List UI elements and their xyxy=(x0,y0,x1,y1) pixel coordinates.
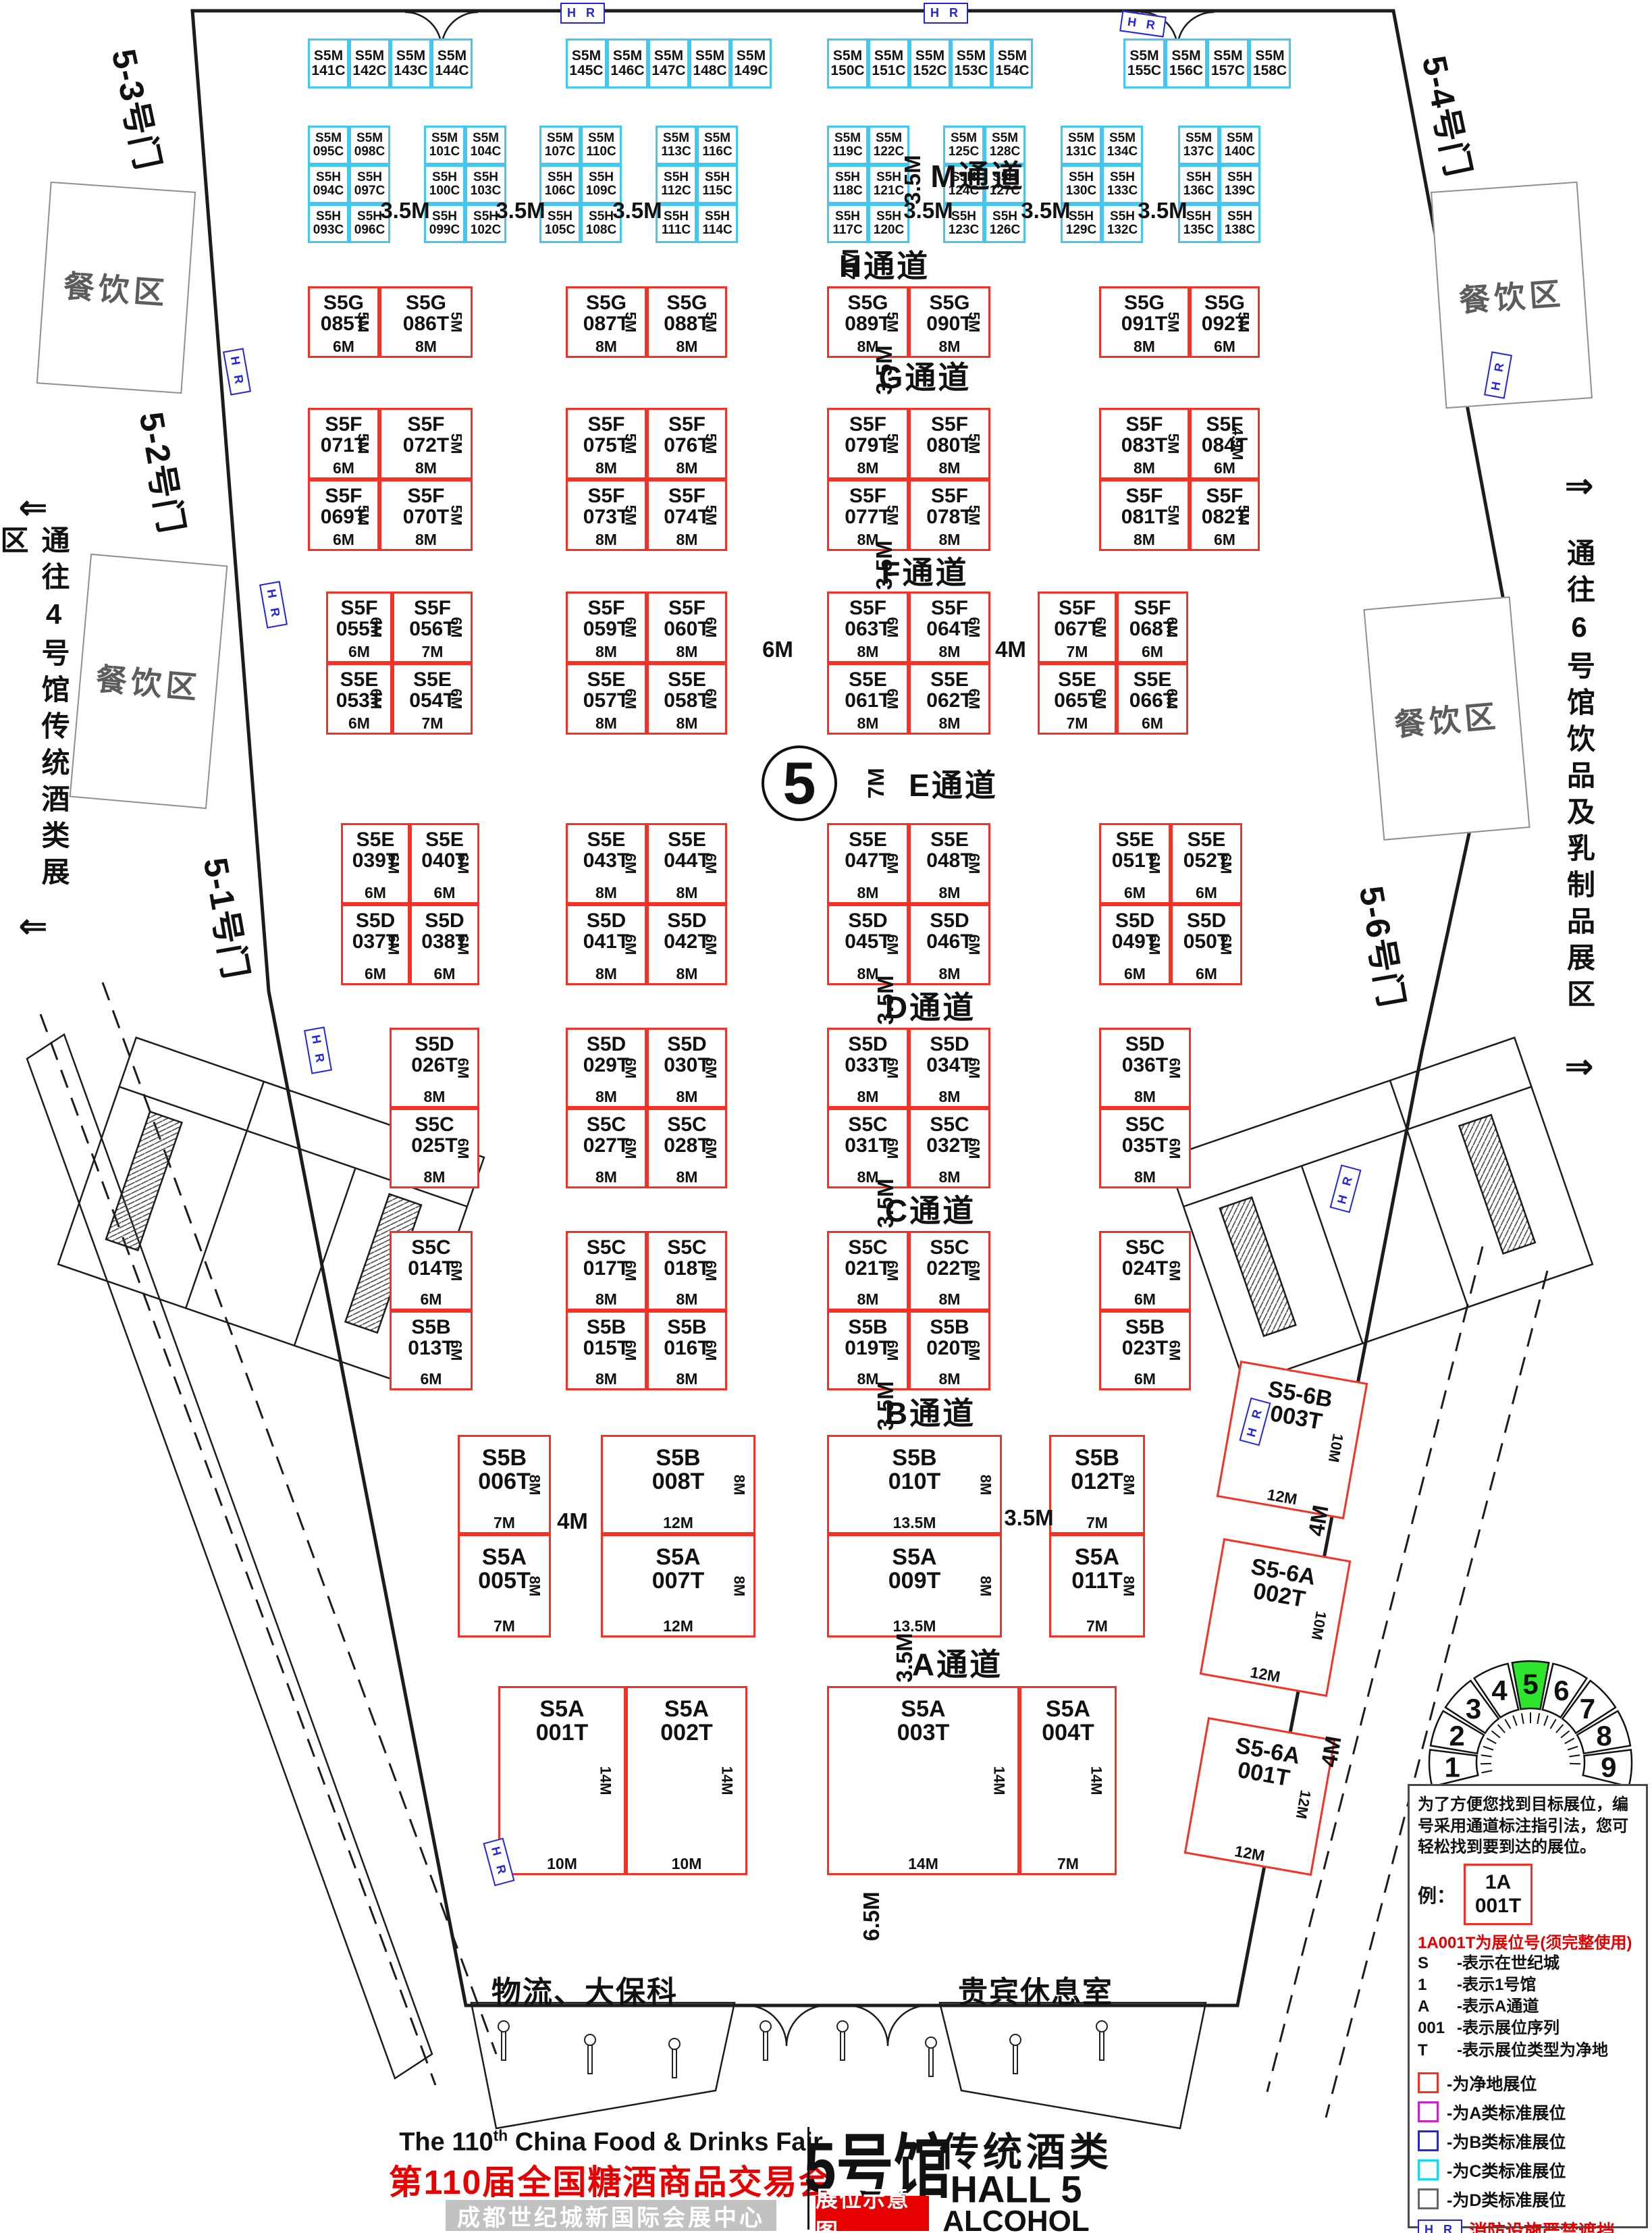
legend-example-booth: 1A 001T xyxy=(1464,1864,1533,1925)
booth-side-dim: 5M xyxy=(449,312,464,333)
booth-bottom-dim: 8M xyxy=(568,885,645,901)
booth-S5G-090T[interactable]: S5G090T8M5M xyxy=(909,286,990,358)
booth-side-dim: 8M xyxy=(1121,1474,1136,1495)
booth-side-dim: 4.9M xyxy=(1230,427,1245,461)
booth-S5M-154C[interactable]: S5M154C xyxy=(992,38,1033,88)
booth-side-dim: 5M xyxy=(703,505,718,526)
booth-S5M-146C[interactable]: S5M146C xyxy=(607,38,648,88)
booth-side-dim: 8M xyxy=(1121,1575,1136,1596)
booth-S5H-117C[interactable]: S5H117C xyxy=(827,204,868,243)
booth-bottom-dim: 8M xyxy=(568,1292,645,1307)
dim-label: 3.5M xyxy=(1004,1505,1053,1531)
booth-S5G-086T[interactable]: S5G086T8M5M xyxy=(379,286,473,358)
booth-side-dim: 6M xyxy=(1219,935,1233,955)
fire-hydrant-icon: H R xyxy=(1418,2219,1462,2233)
booth-side-dim: 6M xyxy=(369,617,383,638)
booth-id: S5-6A001T xyxy=(1200,1729,1331,1797)
booth-S5F-069T[interactable]: S5F069T6M5M xyxy=(308,479,379,551)
booth-bottom-dim: 8M xyxy=(568,339,645,354)
booth-id: S5M156C xyxy=(1167,49,1205,78)
booth-id: S5H103C xyxy=(467,171,504,198)
booth-side-dim: 5M xyxy=(885,312,900,333)
booth-S5C-018T[interactable]: S5C018T8M6M xyxy=(647,1231,727,1311)
booth-S5M-142C[interactable]: S5M142C xyxy=(349,38,390,88)
booth-side-dim: 5M xyxy=(703,312,718,333)
booth-S5M-098C[interactable]: S5M098C xyxy=(349,126,390,165)
booth-S5A-001T[interactable]: S5A001T10M14M xyxy=(498,1686,626,1875)
booth-bottom-dim: 8M xyxy=(911,1292,988,1307)
booth-S5B-016T[interactable]: S5B016T8M6M xyxy=(647,1311,727,1390)
booth-side-dim: 5M xyxy=(967,505,982,526)
booth-S5F-080T[interactable]: S5F080T8M5M xyxy=(909,408,990,479)
booth-id: S5M154C xyxy=(994,49,1031,78)
booth-S5B-015T[interactable]: S5B015T8M6M xyxy=(566,1311,647,1390)
booth-id: S5H132C xyxy=(1104,210,1141,237)
booth-S5E-054T[interactable]: S5E054T7M6M xyxy=(392,663,473,735)
booth-side-dim: 6M xyxy=(449,617,464,638)
booth-S5E-044T[interactable]: S5E044T8M6M xyxy=(647,823,727,904)
booth-side-dim: 6M xyxy=(1147,853,1162,874)
booth-side-dim: 6M xyxy=(1147,935,1162,955)
booth-S5M-144C[interactable]: S5M144C xyxy=(431,38,473,88)
booth-id: S5M153C xyxy=(953,49,990,78)
booth-S5H-094C[interactable]: S5H094C xyxy=(308,165,349,204)
booth-S5B-010T[interactable]: S5B010T13.5M8M xyxy=(827,1435,1002,1534)
booth-side-dim: 5M xyxy=(1166,505,1181,526)
booth-bottom-dim: 6M xyxy=(310,532,377,548)
booth-S5B-012T[interactable]: S5B012T7M8M xyxy=(1049,1435,1145,1534)
locator-hall-number: 9 xyxy=(1601,1751,1616,1783)
booth-S5D-036T[interactable]: S5D036T8M6M xyxy=(1099,1028,1191,1108)
booth-id: S5H109C xyxy=(583,171,620,198)
booth-S5B-013T[interactable]: S5B013T6M6M xyxy=(390,1311,473,1390)
dim-label: 4M xyxy=(995,637,1026,662)
booth-bottom-dim: 8M xyxy=(381,461,471,476)
booth-S5A-003T[interactable]: S5A003T14M14M xyxy=(827,1686,1019,1875)
booth-bottom-dim: 12M xyxy=(603,1619,753,1634)
booth-S5E-065T[interactable]: S5E065T7M6M xyxy=(1038,663,1117,735)
booth-S5G-088T[interactable]: S5G088T8M5M xyxy=(647,286,727,358)
hall-walls xyxy=(0,0,1652,2233)
booth-S5C-031T[interactable]: S5C031T8M6M xyxy=(827,1108,909,1188)
booth-side-dim: 5M xyxy=(623,505,638,526)
column-icon xyxy=(836,2020,849,2032)
booth-S5D-030T[interactable]: S5D030T8M6M xyxy=(647,1028,727,1108)
booth-bottom-dim: 8M xyxy=(392,1089,477,1105)
booth-S5M-145C[interactable]: S5M145C xyxy=(566,38,607,88)
booth-S5E-048T[interactable]: S5E048T8M6M xyxy=(909,823,990,904)
booth-side-dim: 6M xyxy=(456,1138,471,1159)
booth-S5F-072T[interactable]: S5F072T8M5M xyxy=(379,408,473,479)
legend-swatch-row: -为B类标准展位 xyxy=(1418,2129,1638,2153)
booth-side-dim: 8M xyxy=(978,1575,993,1596)
booth-S5M-156C[interactable]: S5M156C xyxy=(1165,38,1207,88)
booth-side-dim: 8M xyxy=(732,1575,747,1596)
booth-id: S5H120C xyxy=(870,210,907,237)
booth-S5E-053T[interactable]: S5E053T6M6M xyxy=(326,663,392,735)
booth-side-dim: 6M xyxy=(386,853,401,874)
booth-S5F-075T[interactable]: S5F075T8M5M xyxy=(566,408,647,479)
booth-S5C-028T[interactable]: S5C028T8M6M xyxy=(647,1108,727,1188)
hall-type-en: ALCOHOL xyxy=(942,2205,1090,2233)
corridor-right-text: 通往6号馆饮品及乳制品展区 xyxy=(1559,538,1600,1016)
booth-S5M-143C[interactable]: S5M143C xyxy=(390,38,431,88)
legend-example-line2: 001T xyxy=(1466,1895,1530,1918)
booth-S5M-152C[interactable]: S5M152C xyxy=(909,38,951,88)
booth-S5A-005T[interactable]: S5A005T7M8M xyxy=(458,1534,551,1637)
legend-intro: 为了方便您找到目标展位，编号采用通道标注指引法，您可轻松找到要到达的展位。 xyxy=(1418,1794,1638,1858)
booth-S5E-039T[interactable]: S5E039T6M6M xyxy=(341,823,410,904)
booth-bottom-dim: 7M xyxy=(394,716,471,731)
booth-bottom-dim: 6M xyxy=(310,339,377,354)
corridor-to-hall6: ⇒ 通往6号馆饮品及乳制品展区 ⇒ xyxy=(1555,469,1603,1084)
booth-side-dim: 6M xyxy=(623,1057,638,1078)
booth-S5E-058T[interactable]: S5E058T8M6M xyxy=(647,663,727,735)
corridor-to-hall4: ⇐ 通往4号馆传统酒类展区 ⇐ xyxy=(9,490,57,944)
booth-S5F-068T[interactable]: S5F068T6M6M xyxy=(1117,592,1188,663)
booth-S5H-139C[interactable]: S5H139C xyxy=(1219,165,1260,204)
booth-S5F-070T[interactable]: S5F070T8M5M xyxy=(379,479,473,551)
booth-S5E-066T[interactable]: S5E066T6M6M xyxy=(1117,663,1188,735)
logistics-room xyxy=(471,2003,735,2128)
booth-S5F-082T[interactable]: S5F082T6M5M xyxy=(1190,479,1260,551)
booth-S5B-008T[interactable]: S5B008T12M8M xyxy=(601,1435,755,1534)
booth-S5A-011T[interactable]: S5A011T7M8M xyxy=(1049,1534,1145,1637)
booth-side-dim: 5M xyxy=(449,434,464,454)
booth-side-dim: 6M xyxy=(456,1057,471,1078)
booth-bottom-dim: 6M xyxy=(1101,1292,1189,1307)
booth-side-dim: 5M xyxy=(356,434,371,454)
booth-S5D-038T[interactable]: S5D038T6M6M xyxy=(410,904,479,985)
booth-S5M-157C[interactable]: S5M157C xyxy=(1207,38,1249,88)
booth-bottom-dim: 7M xyxy=(460,1515,549,1531)
booth-bottom-dim: 12M xyxy=(603,1515,753,1531)
aisle-width-H通道: 4M xyxy=(838,248,863,280)
booth-S5C-032T[interactable]: S5C032T8M6M xyxy=(909,1108,990,1188)
booth-side-dim: 6M xyxy=(967,853,982,874)
booth-side-dim: 6M xyxy=(885,1057,900,1078)
booth-S5M-153C[interactable]: S5M153C xyxy=(951,38,992,88)
booth-bottom-dim: 8M xyxy=(1101,339,1188,354)
booth-side-dim: 6M xyxy=(456,853,471,874)
booth-S5H-118C[interactable]: S5H118C xyxy=(827,165,868,204)
booth-bottom-dim: 8M xyxy=(649,1089,725,1105)
legend-fire-row: H R 消防设施严禁遮挡 xyxy=(1418,2217,1638,2233)
booth-bottom-dim: 8M xyxy=(829,716,907,731)
booth-S5M-101C[interactable]: S5M101C xyxy=(424,126,465,165)
booth-S5M-131C[interactable]: S5M131C xyxy=(1061,126,1102,165)
booth-S5F-067T[interactable]: S5F067T7M6M xyxy=(1038,592,1117,663)
booth-bottom-dim: 10M xyxy=(500,1856,624,1872)
booth-S5F-083T[interactable]: S5F083T8M5M xyxy=(1099,408,1190,479)
booth-S5A-004T[interactable]: S5A004T7M14M xyxy=(1019,1686,1117,1875)
booth-S5B-019T[interactable]: S5B019T8M6M xyxy=(827,1311,909,1390)
booth-S5M-149C[interactable]: S5M149C xyxy=(730,38,772,88)
booth-S5D-034T[interactable]: S5D034T8M6M xyxy=(909,1028,990,1108)
locator-hall-number: 1 xyxy=(1445,1751,1460,1783)
booth-S5F-056T[interactable]: S5F056T7M6M xyxy=(392,592,473,663)
dim-label: 3.5M xyxy=(612,198,662,224)
arrow-left-icon: ⇐ xyxy=(18,490,48,525)
dim-label: 3.5M xyxy=(496,198,545,224)
booth-bottom-dim: 6M xyxy=(1192,461,1258,476)
booth-S5C-021T[interactable]: S5C021T8M6M xyxy=(827,1231,909,1311)
booth-id: S5M116C xyxy=(699,132,736,159)
booth-S5M-104C[interactable]: S5M104C xyxy=(465,126,506,165)
booth-id: S5F084T xyxy=(1192,414,1258,456)
booth-S5D-029T[interactable]: S5D029T8M6M xyxy=(566,1028,647,1108)
booth-S5F-059T[interactable]: S5F059T8M6M xyxy=(566,592,647,663)
booth-S5C-027T[interactable]: S5C027T8M6M xyxy=(566,1108,647,1188)
fire-hydrant-icon: H R xyxy=(924,3,968,24)
booth-bottom-dim: 6M xyxy=(1119,644,1186,660)
booth-S5M-113C[interactable]: S5M113C xyxy=(656,126,697,165)
dim-label: 3.5M xyxy=(1021,198,1070,224)
legend-example-line1: 1A xyxy=(1466,1871,1530,1895)
booth-S5M-140C[interactable]: S5M140C xyxy=(1219,126,1260,165)
booth-bottom-dim: 8M xyxy=(911,339,988,354)
booth-bottom-dim: 8M xyxy=(1101,1089,1189,1105)
booth-S5B-020T[interactable]: S5B020T8M6M xyxy=(909,1311,990,1390)
booth-S5H-099C[interactable]: S5H099C xyxy=(424,204,465,243)
booth-S5B-006T[interactable]: S5B006T7M8M xyxy=(458,1435,551,1534)
booth-id: S5H115C xyxy=(699,171,736,198)
booth-side-dim: 10M xyxy=(1326,1432,1345,1463)
booth-bottom-dim: 8M xyxy=(649,966,725,982)
booth-side-dim: 14M xyxy=(598,1766,613,1795)
legend-fire-note: 消防设施严禁遮挡 xyxy=(1469,2217,1615,2233)
booth-S5M-147C[interactable]: S5M147C xyxy=(648,38,689,88)
booth-S5C-014T[interactable]: S5C014T6M6M xyxy=(390,1231,473,1311)
booth-bottom-dim: 6M xyxy=(1101,885,1169,901)
booth-side-dim: 6M xyxy=(967,935,982,955)
locator-hall-number: 6 xyxy=(1553,1675,1569,1706)
booth-S5H-106C[interactable]: S5H106C xyxy=(539,165,581,204)
booth-bottom-dim: 8M xyxy=(649,461,725,476)
booth-side-dim: 5M xyxy=(1166,434,1181,454)
booth-S5M-148C[interactable]: S5M148C xyxy=(689,38,730,88)
booth-S5H-105C[interactable]: S5H105C xyxy=(539,204,581,243)
booth-S5A-009T[interactable]: S5A009T13.5M8M xyxy=(827,1534,1002,1637)
booth-S5D-049T[interactable]: S5D049T6M6M xyxy=(1099,904,1171,985)
booth-S5F-071T[interactable]: S5F071T6M5M xyxy=(308,408,379,479)
booth-S5G-092T[interactable]: S5G092T6M5M xyxy=(1190,286,1260,358)
booth-S5C-035T[interactable]: S5C035T8M6M xyxy=(1099,1108,1191,1188)
booth-id: S5H106C xyxy=(541,171,579,198)
booth-S5F-063T[interactable]: S5F063T8M6M xyxy=(827,592,909,663)
booth-S5D-033T[interactable]: S5D033T8M6M xyxy=(827,1028,909,1108)
locator-hall-number: 2 xyxy=(1449,1720,1464,1752)
booth-side-dim: 6M xyxy=(1167,1138,1182,1159)
booth-bottom-dim: 8M xyxy=(568,1089,645,1105)
booth-side-dim: 5M xyxy=(623,312,638,333)
arrow-left-icon: ⇐ xyxy=(18,909,48,944)
booth-bottom-dim: 7M xyxy=(1021,1856,1115,1872)
booth-S5F-078T[interactable]: S5F078T8M5M xyxy=(909,479,990,551)
booth-S5M-107C[interactable]: S5M107C xyxy=(539,126,581,165)
booth-S5M-119C[interactable]: S5M119C xyxy=(827,126,868,165)
booth-S5G-091T[interactable]: S5G091T8M5M xyxy=(1099,286,1190,358)
booth-S5D-041T[interactable]: S5D041T8M6M xyxy=(566,904,647,985)
booth-side-dim: 6M xyxy=(703,1057,718,1078)
booth-S5E-051T[interactable]: S5E051T6M6M xyxy=(1099,823,1171,904)
booth-S5D-045T[interactable]: S5D045T8M6M xyxy=(827,904,909,985)
booth-bottom-dim: 8M xyxy=(649,644,725,660)
booth-S5H-132C[interactable]: S5H132C xyxy=(1102,204,1143,243)
floor-plan: ⇐ 通往4号馆传统酒类展区 ⇐ ⇒ 通往6号馆饮品及乳制品展区 ⇒ 5 1234… xyxy=(0,0,1652,2233)
booth-bottom-dim: 14M xyxy=(829,1856,1017,1872)
aisle-width-E通道: 7M xyxy=(863,768,889,799)
booth-side-dim: 6M xyxy=(885,1340,900,1361)
booth-id: S5M098C xyxy=(351,132,388,159)
booth-S5M-137C[interactable]: S5M137C xyxy=(1178,126,1219,165)
aisle-width-C通道: 3.5M xyxy=(873,1178,899,1228)
booth-side-dim: 6M xyxy=(885,617,900,638)
booth-side-dim: 5M xyxy=(1166,312,1181,333)
booth-side-dim: 6M xyxy=(456,935,471,955)
booth-id: S5H136C xyxy=(1180,171,1217,198)
booth-S5D-042T[interactable]: S5D042T8M6M xyxy=(647,904,727,985)
booth-S5E-040T[interactable]: S5E040T6M6M xyxy=(410,823,479,904)
booth-S5H-133C[interactable]: S5H133C xyxy=(1102,165,1143,204)
booth-side-dim: 8M xyxy=(527,1575,542,1596)
aisle-width-G通道: 3.5M xyxy=(872,345,897,394)
booth-S5M-151C[interactable]: S5M151C xyxy=(868,38,909,88)
dim-label: 4M xyxy=(1303,1503,1333,1538)
booth-id: S5M150C xyxy=(829,49,866,78)
booth-S5M-110C[interactable]: S5M110C xyxy=(581,126,622,165)
arrow-right-icon: ⇒ xyxy=(1564,469,1594,504)
booth-S5C-022T[interactable]: S5C022T8M6M xyxy=(909,1231,990,1311)
aisle-width-B通道: 3.5M xyxy=(873,1381,899,1430)
booth-S5M-155C[interactable]: S5M155C xyxy=(1123,38,1165,88)
booth-S5F-060T[interactable]: S5F060T8M6M xyxy=(647,592,727,663)
booth-bottom-dim: 8M xyxy=(1101,532,1188,548)
hall-locator-fan: 123456789 xyxy=(1414,1610,1647,1793)
booth-S5H-126C[interactable]: S5H126C xyxy=(984,204,1025,243)
booth-S5M-158C[interactable]: S5M158C xyxy=(1249,38,1291,88)
booth-S5M-095C[interactable]: S5M095C xyxy=(308,126,349,165)
booth-side-dim: 6M xyxy=(703,689,718,710)
booth-S5M-134C[interactable]: S5M134C xyxy=(1102,126,1143,165)
booth-side-dim: 5M xyxy=(885,505,900,526)
booth-S5H-100C[interactable]: S5H100C xyxy=(424,165,465,204)
dining-area: 餐饮区 xyxy=(70,554,228,809)
booth-S5E-047T[interactable]: S5E047T8M6M xyxy=(827,823,909,904)
booth-S5D-046T[interactable]: S5D046T8M6M xyxy=(909,904,990,985)
booth-S5E-057T[interactable]: S5E057T8M6M xyxy=(566,663,647,735)
venue-bar: 成都世纪城新国际会展中心 xyxy=(446,2200,776,2231)
booth-S5F-073T[interactable]: S5F073T8M5M xyxy=(566,479,647,551)
booth-S5E-061T[interactable]: S5E061T8M6M xyxy=(827,663,909,735)
booth-S5H-093C[interactable]: S5H093C xyxy=(308,204,349,243)
booth-bottom-dim: 8M xyxy=(649,532,725,548)
booth-S5M-141C[interactable]: S5M141C xyxy=(308,38,349,88)
booth-bottom-dim: 8M xyxy=(568,716,645,731)
booth-S5F-076T[interactable]: S5F076T8M5M xyxy=(647,408,727,479)
booth-S5C-017T[interactable]: S5C017T8M6M xyxy=(566,1231,647,1311)
booth-bottom-dim: 6M xyxy=(1101,966,1169,982)
booth-bottom-dim: 13.5M xyxy=(829,1515,1000,1531)
right-annex xyxy=(1167,1038,1593,1384)
booth-S5F-081T[interactable]: S5F081T8M5M xyxy=(1099,479,1190,551)
booth-S5H-115C[interactable]: S5H115C xyxy=(697,165,738,204)
booth-side-dim: 6M xyxy=(1093,617,1108,638)
booth-side-dim: 6M xyxy=(623,1340,638,1361)
booth-bottom-dim: 7M xyxy=(1051,1619,1143,1634)
booth-bottom-dim: 6M xyxy=(343,966,408,982)
booth-S5D-026T[interactable]: S5D026T8M6M xyxy=(390,1028,479,1108)
booth-id: S5A004T xyxy=(1021,1698,1115,1745)
booth-S5-6A-002T[interactable]: S5-6A002T12M10M xyxy=(1200,1538,1352,1697)
booth-bottom-dim: 8M xyxy=(649,339,725,354)
booth-id: S5M101C xyxy=(426,132,463,159)
booth-S5C-025T[interactable]: S5C025T8M6M xyxy=(390,1108,479,1188)
booth-S5M-116C[interactable]: S5M116C xyxy=(697,126,738,165)
map-tag: 展位示意图 xyxy=(816,2196,929,2231)
booth-S5E-043T[interactable]: S5E043T8M6M xyxy=(566,823,647,904)
booth-bottom-dim: 8M xyxy=(911,644,988,660)
booth-S5A-002T[interactable]: S5A002T10M14M xyxy=(626,1686,747,1875)
swatch-icon xyxy=(1418,2159,1439,2180)
booth-side-dim: 6M xyxy=(449,1340,464,1361)
booth-S5M-150C[interactable]: S5M150C xyxy=(827,38,868,88)
booth-id: S5M141C xyxy=(310,49,347,78)
booth-S5E-052T[interactable]: S5E052T6M6M xyxy=(1171,823,1242,904)
booth-bottom-dim: 6M xyxy=(310,461,377,476)
aisle-width-D通道: 3.5M xyxy=(873,975,899,1024)
booth-S5H-114C[interactable]: S5H114C xyxy=(697,204,738,243)
booth-S5E-062T[interactable]: S5E062T8M6M xyxy=(909,663,990,735)
booth-S5F-084T[interactable]: S5F084T6M4.9M xyxy=(1190,408,1260,479)
booth-S5D-037T[interactable]: S5D037T6M6M xyxy=(341,904,410,985)
dim-label: 4M xyxy=(557,1508,588,1534)
booth-side-dim: 5M xyxy=(1236,505,1251,526)
booth-side-dim: 6M xyxy=(1167,1340,1182,1361)
booth-S5F-064T[interactable]: S5F064T8M6M xyxy=(909,592,990,663)
booth-S5D-050T[interactable]: S5D050T6M6M xyxy=(1171,904,1242,985)
booth-S5G-085T[interactable]: S5G085T6M5M xyxy=(308,286,379,358)
booth-S5F-074T[interactable]: S5F074T8M5M xyxy=(647,479,727,551)
booth-bottom-dim: 8M xyxy=(829,461,907,476)
booth-side-dim: 5M xyxy=(623,434,638,454)
corridor-left-text: 通往4号馆传统酒类展区 xyxy=(0,525,74,909)
booth-bottom-dim: 8M xyxy=(568,1371,645,1387)
aisle-width-M通道: 3.5M xyxy=(900,155,926,204)
booth-S5G-087T[interactable]: S5G087T8M5M xyxy=(566,286,647,358)
column-icon xyxy=(925,2037,937,2049)
booth-id: S5H097C xyxy=(351,171,388,198)
booth-S5B-023T[interactable]: S5B023T6M6M xyxy=(1099,1311,1191,1390)
booth-S5-6A-001T[interactable]: S5-6A001T12M12M xyxy=(1184,1717,1336,1876)
swatch-icon xyxy=(1418,2072,1439,2093)
booth-id: S5H126C xyxy=(986,210,1023,237)
booth-S5A-007T[interactable]: S5A007T12M8M xyxy=(601,1534,755,1637)
booth-S5H-138C[interactable]: S5H138C xyxy=(1219,204,1260,243)
booth-side-dim: 5M xyxy=(967,312,982,333)
booth-side-dim: 6M xyxy=(967,1261,982,1282)
booth-side-dim: 6M xyxy=(967,1340,982,1361)
booth-id: S5M137C xyxy=(1180,132,1217,159)
booth-side-dim: 6M xyxy=(1165,617,1179,638)
booth-bottom-dim: 8M xyxy=(649,1292,725,1307)
booth-S5F-079T[interactable]: S5F079T8M5M xyxy=(827,408,909,479)
booth-bottom-dim: 6M xyxy=(328,716,390,731)
booth-S5C-024T[interactable]: S5C024T6M6M xyxy=(1099,1231,1191,1311)
booth-bottom-dim: 8M xyxy=(911,532,988,548)
booth-S5F-055T[interactable]: S5F055T6M6M xyxy=(326,592,392,663)
vip-room xyxy=(940,2003,1206,2128)
